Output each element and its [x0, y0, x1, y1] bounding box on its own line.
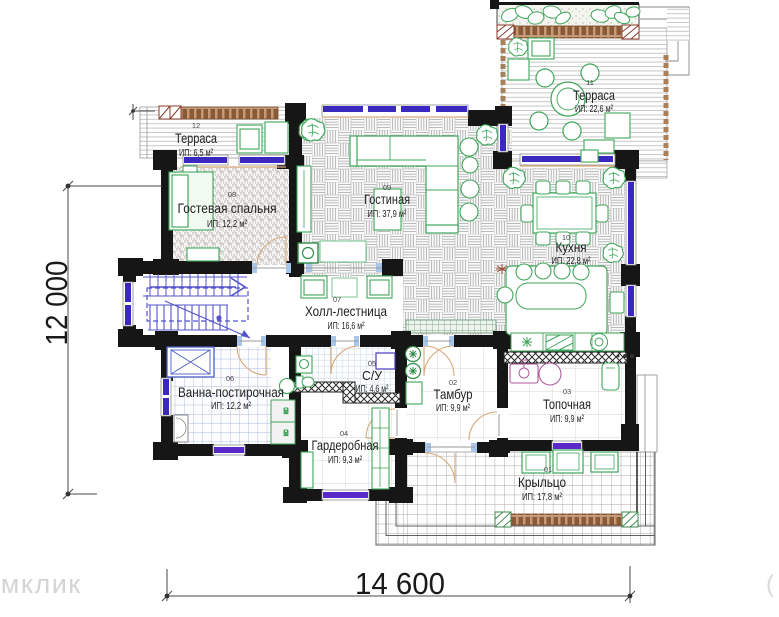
svg-text:Тамбур: Тамбур	[434, 386, 473, 402]
svg-text:КС: КС	[284, 429, 290, 436]
svg-text:Гостевая спальня: Гостевая спальня	[178, 200, 277, 216]
svg-text:Кухня: Кухня	[556, 239, 587, 255]
svg-text:ИП: 17,8 м²: ИП: 17,8 м²	[522, 492, 563, 503]
svg-text:домклик: домклик	[0, 569, 82, 599]
svg-text:ИП: 6,5 м²: ИП: 6,5 м²	[179, 148, 213, 159]
svg-text:08: 08	[228, 190, 236, 199]
svg-text:06: 06	[226, 374, 234, 383]
svg-text:ИП: 37,9 м²: ИП: 37,9 м²	[368, 209, 407, 220]
svg-text:ИП: 22,8 м²: ИП: 22,8 м²	[552, 256, 591, 267]
svg-text:Гостиная: Гостиная	[364, 191, 410, 207]
svg-text:12: 12	[192, 121, 200, 130]
svg-text:12 000: 12 000	[39, 261, 74, 346]
svg-text:Терраса: Терраса	[573, 87, 615, 103]
svg-text:ИП: 12,2 м²: ИП: 12,2 м²	[207, 219, 248, 230]
svg-text:Гардеробная: Гардеробная	[312, 437, 379, 453]
svg-text:КС: КС	[284, 407, 290, 414]
svg-text:ИП: 9,3 м²: ИП: 9,3 м²	[328, 455, 362, 466]
svg-text:С/У: С/У	[362, 368, 383, 383]
svg-text:11: 11	[586, 78, 594, 87]
svg-text:05: 05	[368, 359, 376, 368]
svg-text:ИП: 22,6 м²: ИП: 22,6 м²	[575, 104, 613, 115]
svg-text:Терраса: Терраса	[175, 130, 217, 146]
svg-text:Холл-лестница: Холл-лестница	[305, 303, 387, 319]
svg-text:01: 01	[544, 465, 552, 474]
svg-text:ИП: 4,6 м²: ИП: 4,6 м²	[356, 384, 389, 395]
svg-text:03: 03	[563, 387, 571, 396]
svg-text:ИП: 9,9 м²: ИП: 9,9 м²	[550, 414, 584, 425]
svg-text:(: (	[766, 571, 774, 598]
svg-text:Крыльцо: Крыльцо	[518, 474, 566, 490]
svg-text:Топочная: Топочная	[543, 396, 591, 412]
svg-text:Ванна-постирочная: Ванна-постирочная	[178, 385, 284, 400]
svg-text:ИП: 16,6 м²: ИП: 16,6 м²	[328, 321, 365, 332]
svg-text:ИП: 9,9 м²: ИП: 9,9 м²	[436, 403, 470, 414]
svg-text:14 600: 14 600	[355, 566, 445, 601]
svg-text:ИП: 12,2 м²: ИП: 12,2 м²	[211, 401, 252, 412]
